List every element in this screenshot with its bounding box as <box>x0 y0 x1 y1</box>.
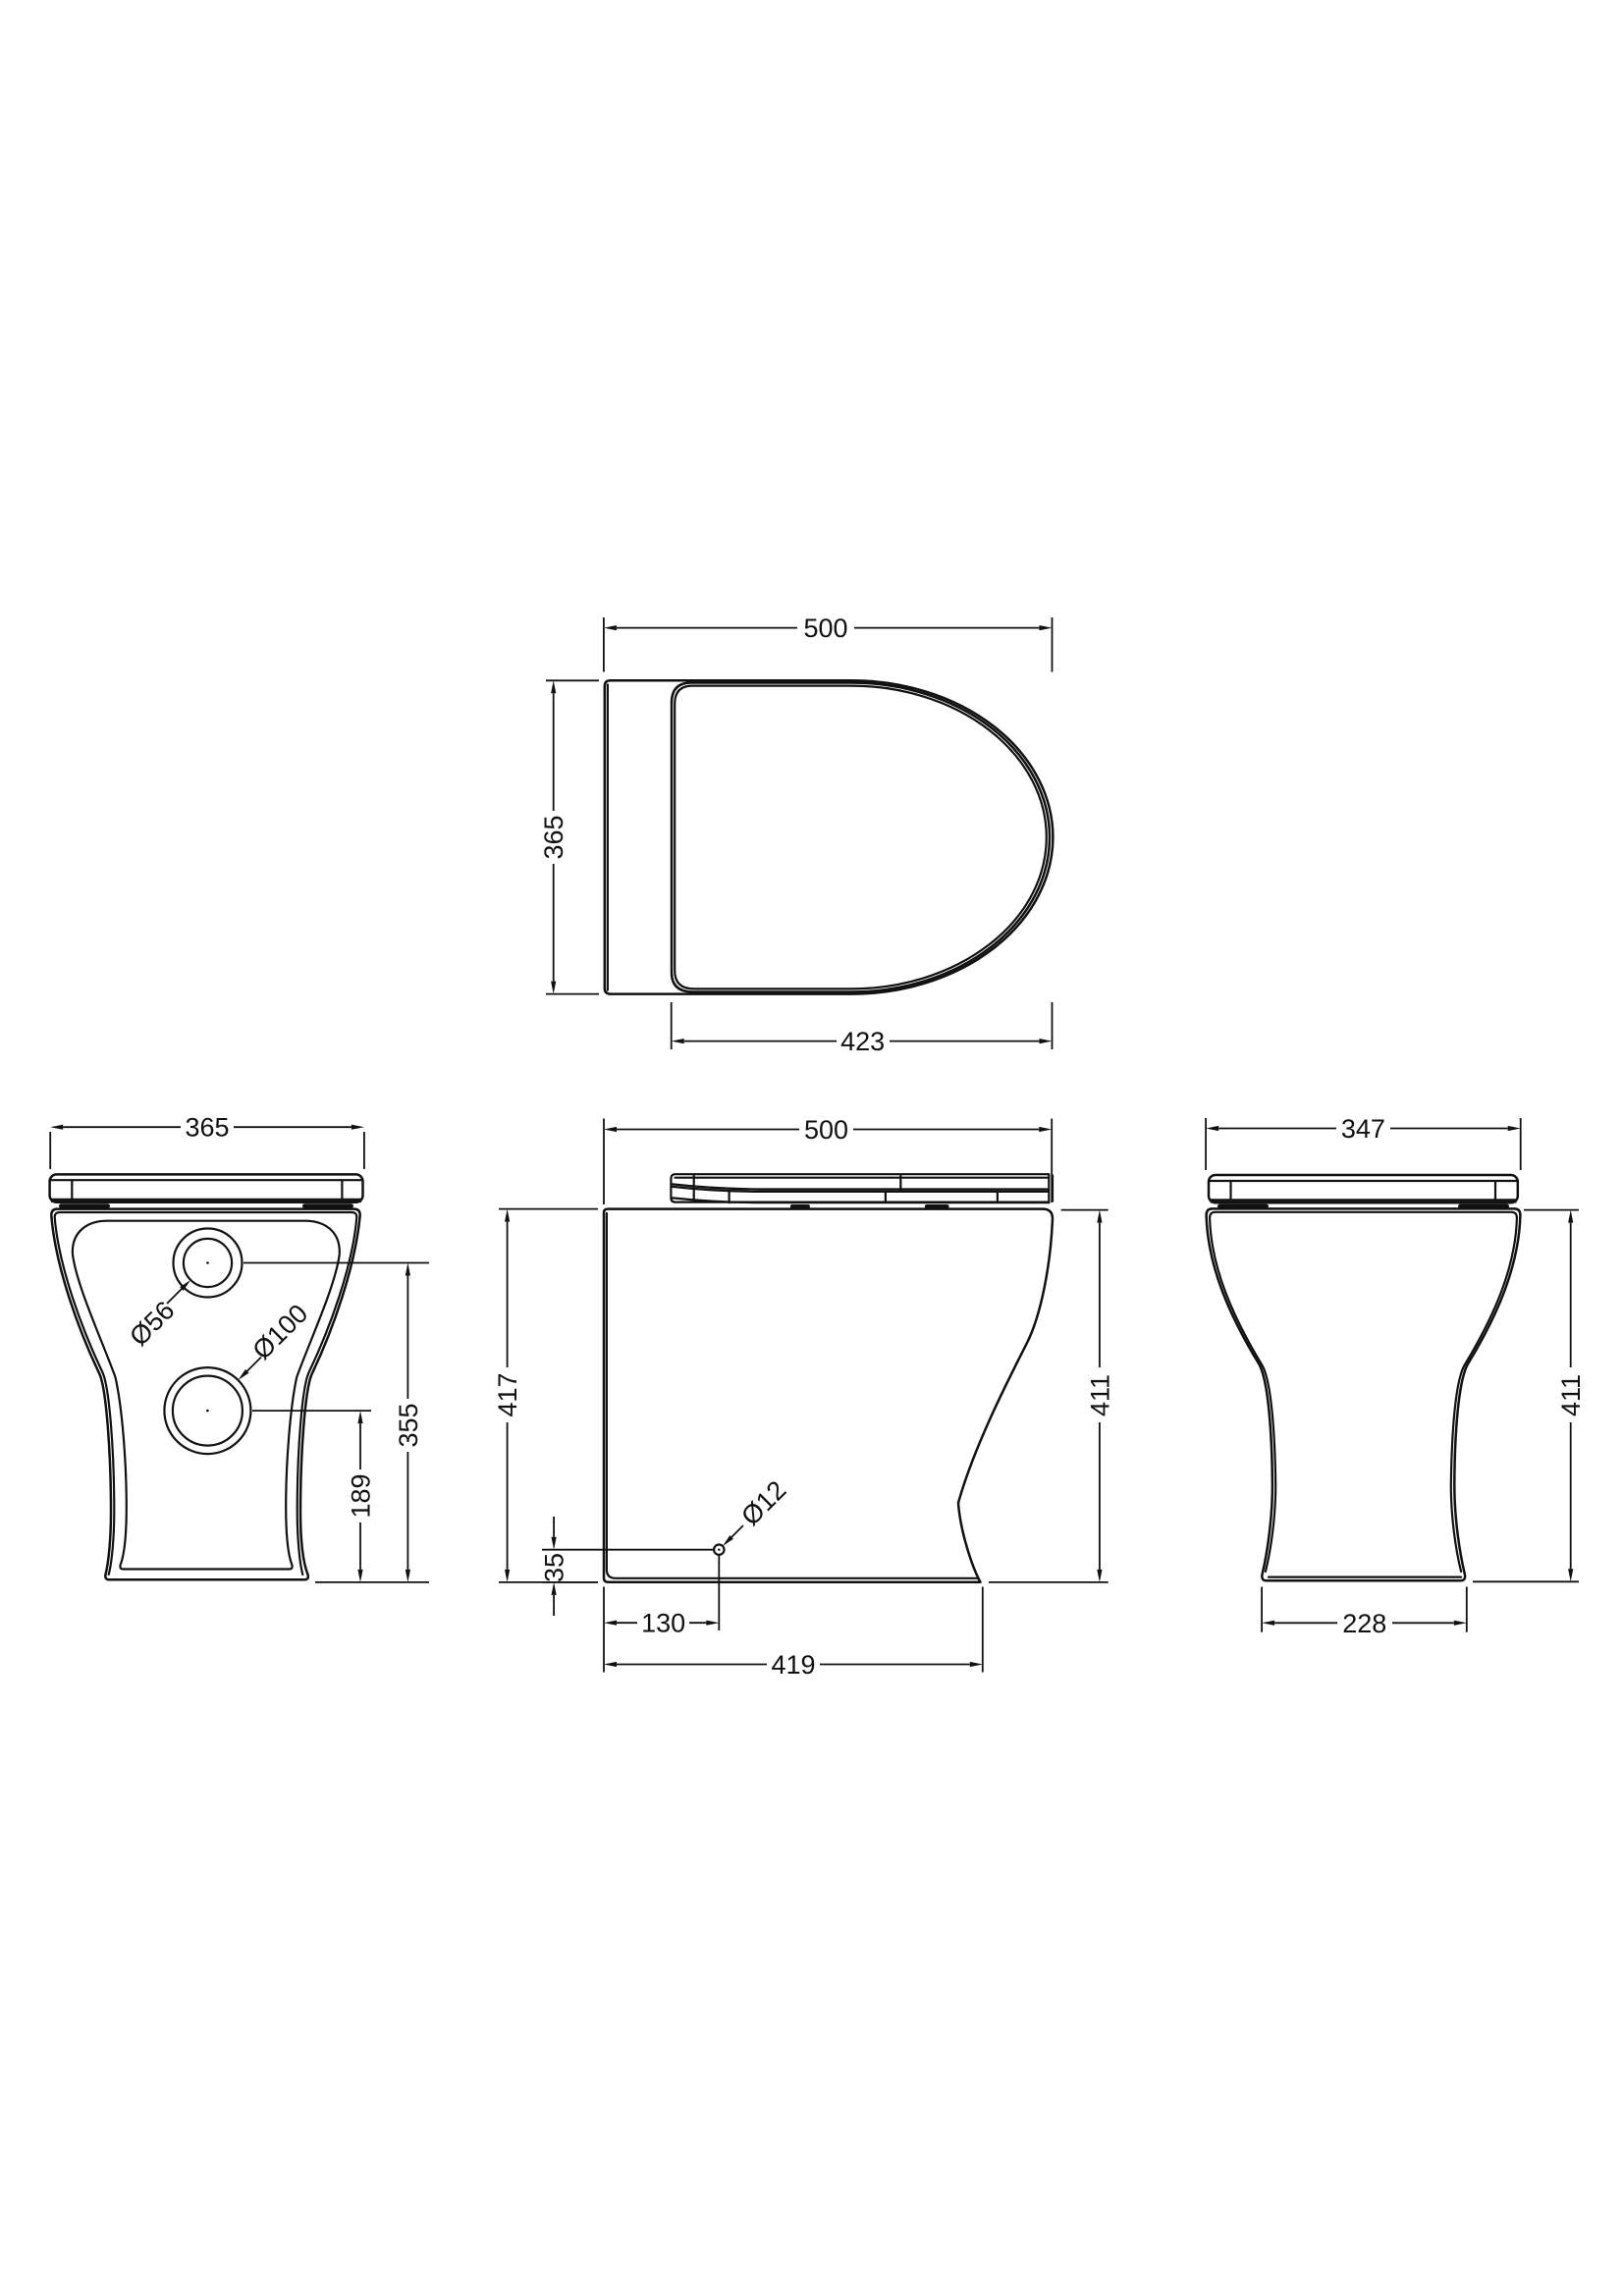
svg-text:130: 130 <box>641 1609 685 1638</box>
svg-text:417: 417 <box>493 1372 522 1416</box>
svg-text:423: 423 <box>840 1027 885 1056</box>
svg-text:35: 35 <box>540 1553 569 1582</box>
svg-text:347: 347 <box>1341 1114 1385 1144</box>
svg-text:355: 355 <box>394 1403 423 1447</box>
svg-text:228: 228 <box>1342 1609 1386 1638</box>
svg-text:411: 411 <box>1556 1374 1586 1416</box>
svg-text:189: 189 <box>347 1473 376 1518</box>
svg-text:419: 419 <box>771 1650 815 1680</box>
svg-text:365: 365 <box>185 1113 229 1143</box>
svg-text:411: 411 <box>1085 1374 1114 1416</box>
svg-text:365: 365 <box>539 815 568 859</box>
svg-text:500: 500 <box>803 614 847 643</box>
svg-text:500: 500 <box>804 1115 848 1145</box>
